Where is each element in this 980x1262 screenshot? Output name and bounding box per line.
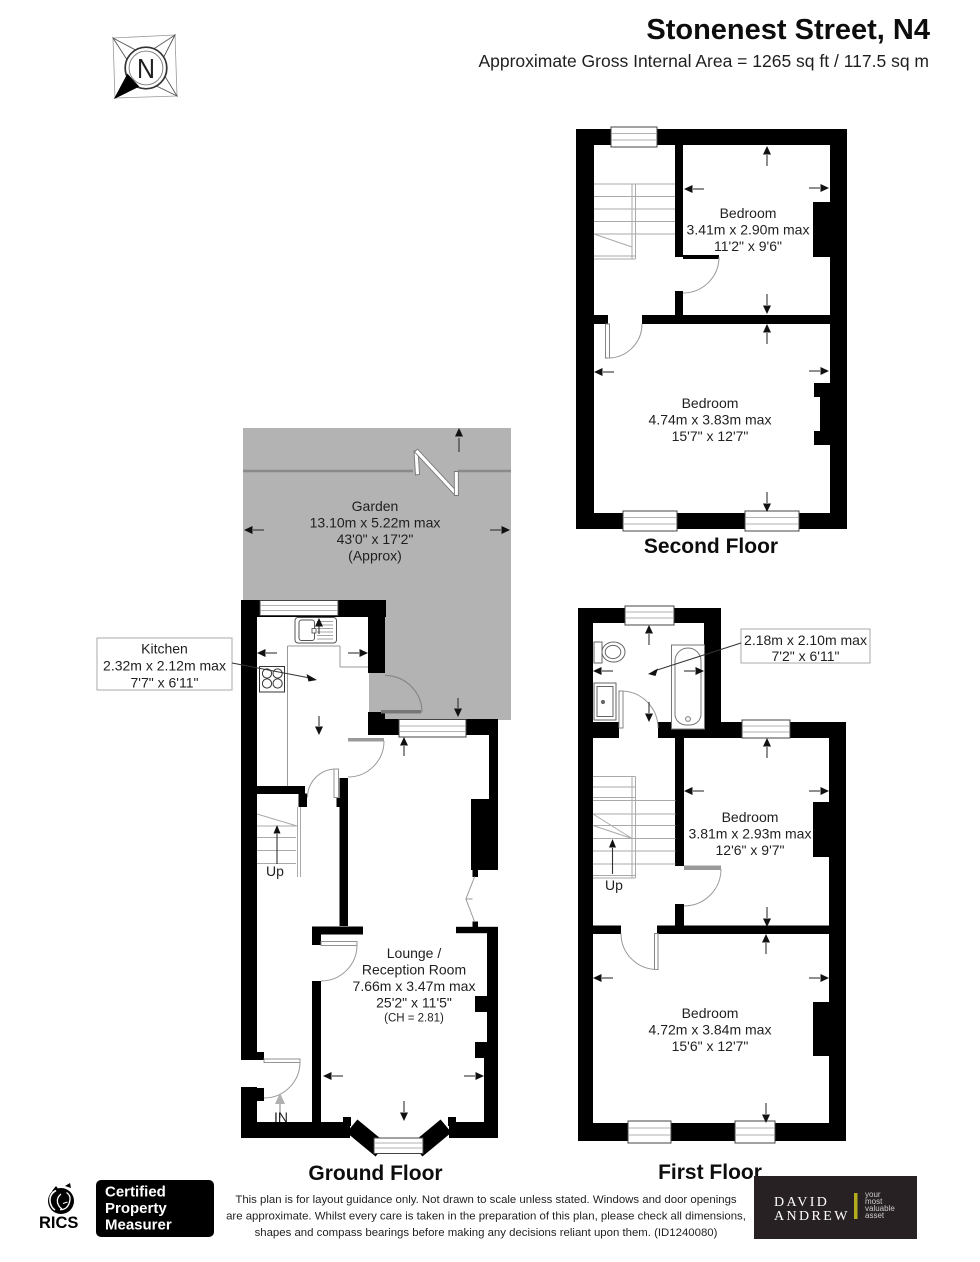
svg-text:Bedroom: Bedroom — [720, 205, 777, 221]
svg-text:Up: Up — [266, 863, 284, 879]
svg-text:ANDREW: ANDREW — [774, 1209, 850, 1224]
svg-text:Certified: Certified — [105, 1184, 166, 1201]
svg-text:N: N — [137, 53, 155, 84]
svg-text:Approximate Gross Internal Are: Approximate Gross Internal Area = 1265 s… — [478, 51, 929, 71]
svg-text:Second Floor: Second Floor — [644, 535, 778, 558]
svg-text:Garden: Garden — [352, 498, 399, 514]
svg-text:Property: Property — [105, 1200, 167, 1217]
svg-text:3.81m x 2.93m max: 3.81m x 2.93m max — [689, 826, 812, 842]
svg-text:3.41m x 2.90m max: 3.41m x 2.90m max — [687, 222, 810, 238]
svg-text:43'0" x 17'2": 43'0" x 17'2" — [337, 531, 414, 547]
svg-text:13.10m x 5.22m max: 13.10m x 5.22m max — [310, 515, 441, 531]
svg-text:Measurer: Measurer — [105, 1217, 172, 1234]
svg-text:Stonenest Street, N4: Stonenest Street, N4 — [646, 14, 930, 46]
svg-text:asset: asset — [865, 1211, 885, 1220]
svg-text:Bedroom: Bedroom — [722, 809, 779, 825]
svg-text:(CH = 2.81): (CH = 2.81) — [384, 1013, 444, 1025]
svg-text:2.32m x 2.12m max: 2.32m x 2.12m max — [103, 658, 226, 674]
svg-text:25'2" x 11'5": 25'2" x 11'5" — [376, 995, 452, 1011]
svg-text:(Approx): (Approx) — [348, 548, 402, 564]
svg-text:are approximate. Whilst every: are approximate. Whilst every care is ta… — [226, 1211, 746, 1223]
svg-text:DAVID: DAVID — [774, 1195, 829, 1210]
svg-text:Reception Room: Reception Room — [362, 962, 466, 978]
svg-text:2.18m x 2.10m max: 2.18m x 2.10m max — [744, 632, 867, 648]
svg-text:7.66m x 3.47m max: 7.66m x 3.47m max — [353, 978, 476, 994]
svg-text:shapes and compass bearings be: shapes and compass bearings before makin… — [255, 1227, 718, 1239]
svg-text:This plan is for layout guidan: This plan is for layout guidance only. N… — [235, 1194, 737, 1206]
svg-text:7'2" x 6'11": 7'2" x 6'11" — [772, 648, 840, 664]
svg-text:4.72m x 3.84m max: 4.72m x 3.84m max — [649, 1022, 772, 1038]
svg-text:15'6" x 12'7": 15'6" x 12'7" — [672, 1038, 749, 1054]
svg-text:RICS: RICS — [39, 1214, 78, 1232]
svg-text:11'2" x 9'6": 11'2" x 9'6" — [714, 238, 782, 254]
svg-text:Up: Up — [605, 877, 623, 893]
svg-text:IN: IN — [274, 1109, 288, 1125]
svg-text:4.74m x 3.83m max: 4.74m x 3.83m max — [649, 412, 772, 428]
svg-text:Lounge /: Lounge / — [387, 945, 442, 961]
svg-text:Ground Floor: Ground Floor — [308, 1162, 442, 1185]
svg-text:7'7" x 6'11": 7'7" x 6'11" — [131, 675, 199, 691]
svg-text:12'6" x 9'7": 12'6" x 9'7" — [716, 842, 785, 858]
svg-text:Kitchen: Kitchen — [141, 641, 188, 657]
svg-text:15'7" x 12'7": 15'7" x 12'7" — [672, 428, 749, 444]
svg-text:Bedroom: Bedroom — [682, 395, 739, 411]
svg-text:First Floor: First Floor — [658, 1161, 762, 1184]
svg-text:Bedroom: Bedroom — [682, 1005, 739, 1021]
